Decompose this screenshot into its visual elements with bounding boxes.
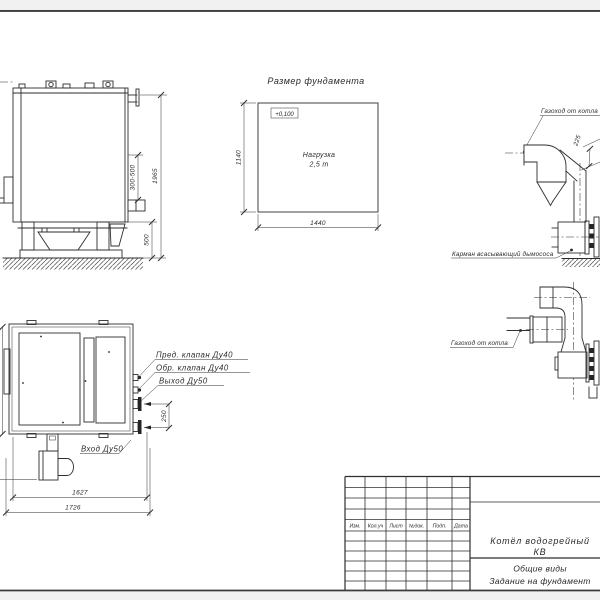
dim-body-length: 1627 [72, 490, 88, 497]
flue-label-lower: Газоход от котла [451, 339, 508, 347]
elevation-mark: +0,100 [275, 112, 294, 118]
boiler-body [13, 88, 128, 222]
dim-foundation-depth: 1140 [236, 150, 243, 165]
label-check-valve: Обр. клапан Ду40 [156, 364, 229, 373]
dim-ports: 250 [161, 410, 168, 423]
dim-total-length: 1726 [65, 505, 81, 512]
col-izm: Изм. [349, 524, 360, 530]
foundation-title: Размер фундамента [267, 76, 364, 86]
col-list: Лист [388, 524, 403, 530]
drawing-sheet: 1965 300-500 500 Размер фундамента +0,10… [0, 0, 600, 600]
load-value: 2,5 т [308, 162, 328, 169]
label-outlet: Выход Ду50 [159, 377, 208, 386]
sheet-bottom-margin [0, 592, 600, 600]
flue-label-upper: Газоход от котла [541, 107, 598, 115]
ground-hatch [3, 258, 143, 270]
doc-name-line1: Общие виды [513, 564, 567, 574]
dim-foundation-width: 1440 [310, 220, 326, 227]
col-ndok: №док. [409, 524, 424, 530]
product-name-line2: КВ [534, 547, 547, 557]
label-inlet: Вход Ду50 [81, 445, 123, 454]
sheet-bottom-border [0, 590, 600, 592]
dim-total-height: 1965 [152, 168, 159, 184]
col-data: Дата [453, 524, 468, 530]
doc-name-line2: Задание на фундамент [489, 576, 590, 586]
col-koluch: Кол.уч [368, 524, 384, 530]
label-safety-valve: Пред. клапан Ду40 [156, 351, 233, 360]
dim-base-height: 500 [144, 234, 151, 246]
sheet-top-margin [0, 0, 600, 10]
load-label: Нагрузка [303, 152, 335, 159]
col-podp: Подп. [433, 524, 447, 530]
dim-height-range: 300-500 [130, 164, 137, 190]
ground-hatch-right [562, 259, 600, 268]
pocket-label: Карман всасывающий дымососа [452, 250, 554, 258]
top-view-body [9, 324, 133, 434]
product-name-line1: Котёл водогрейный [490, 536, 590, 546]
sheet-top-border [0, 10, 600, 12]
